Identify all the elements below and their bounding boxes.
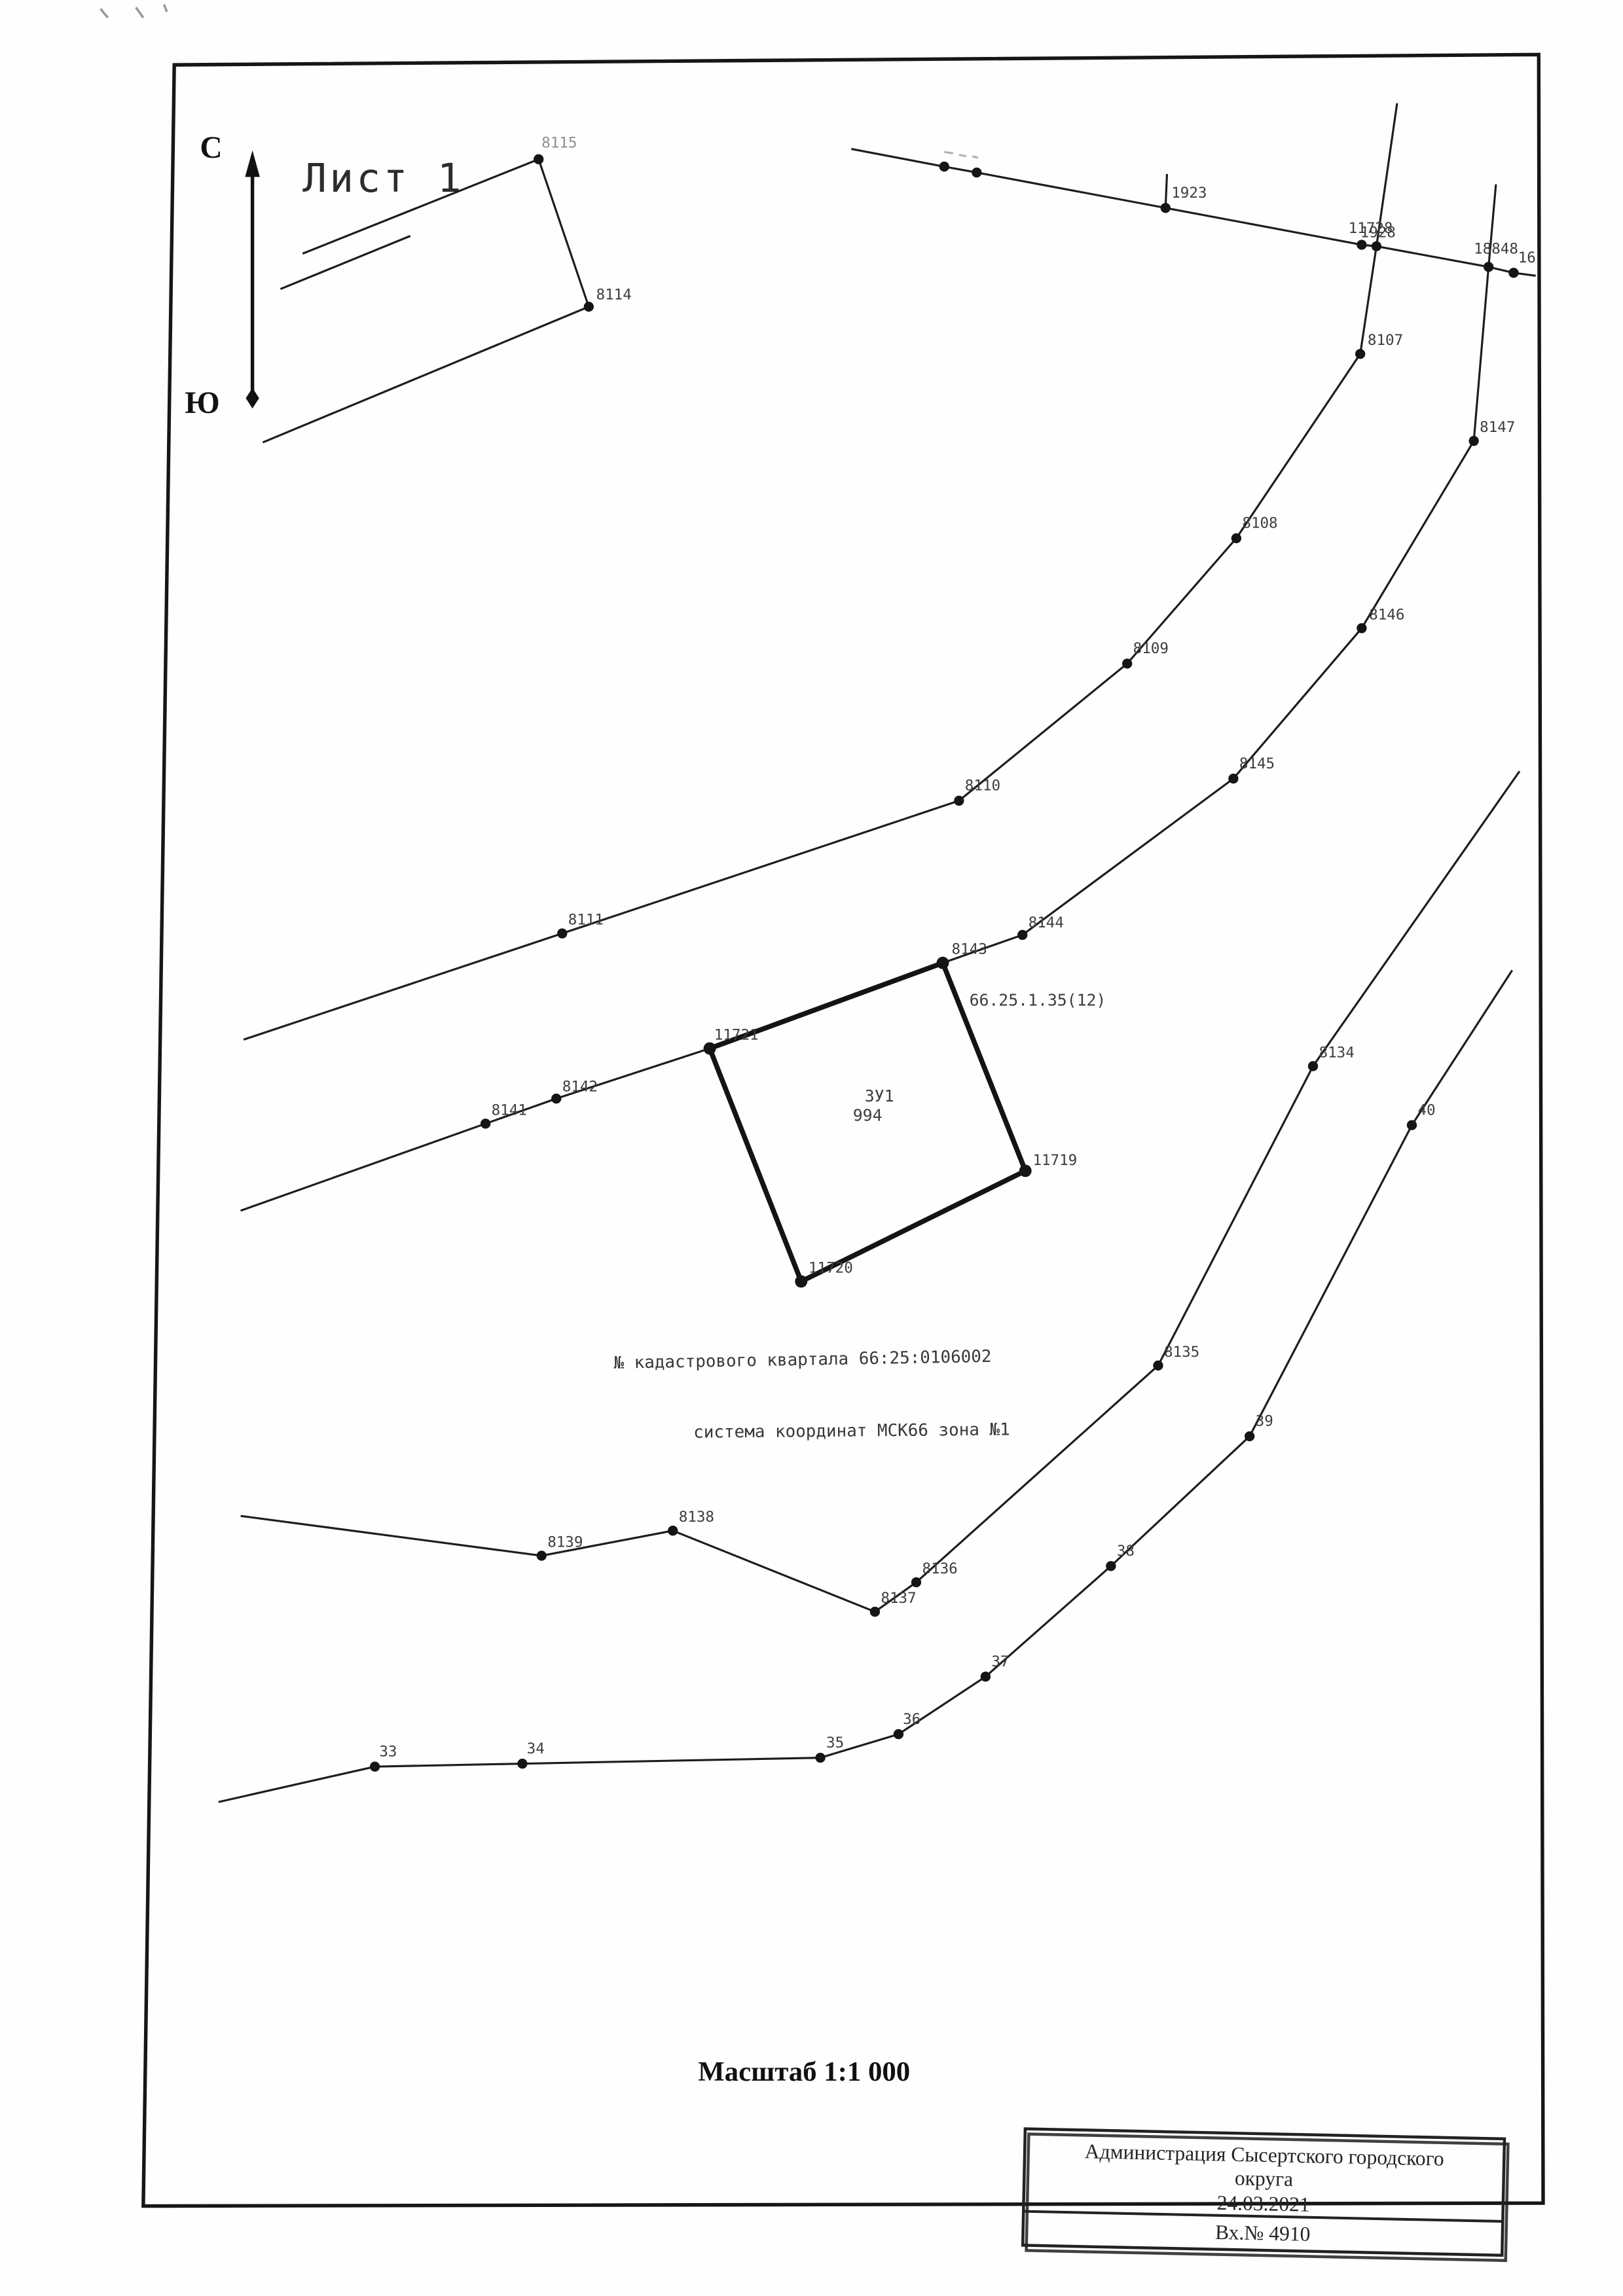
survey-point-label: 8111 xyxy=(568,912,604,929)
survey-point-label: 8115 xyxy=(541,134,577,151)
parcel-area-label: 994 xyxy=(853,1105,883,1124)
survey-point-label: 16 xyxy=(1518,249,1536,266)
scan-pen-mark xyxy=(164,5,167,12)
survey-point-label: 11721 xyxy=(714,1026,759,1043)
survey-point-label: 34 xyxy=(527,1740,545,1757)
survey-point-label: 37 xyxy=(991,1653,1009,1670)
north-arrow-head-icon xyxy=(245,151,260,177)
line-to-8147-8141 xyxy=(241,185,1496,1211)
survey-point-dot xyxy=(1161,203,1171,213)
survey-point-label: 8110 xyxy=(965,778,1000,795)
scale-caption: Масштаб 1:1 000 xyxy=(698,2056,910,2087)
survey-point-label: 8144 xyxy=(1029,914,1064,931)
survey-point-dot xyxy=(1153,1361,1163,1371)
survey-point-dot xyxy=(1372,242,1381,251)
survey-point-label: 8141 xyxy=(492,1102,527,1119)
survey-point-dot xyxy=(1228,774,1238,783)
sheet1-fragment-b xyxy=(280,236,410,289)
survey-point-label: 8147 xyxy=(1480,419,1515,436)
page-border xyxy=(143,54,1543,2206)
survey-point-dot xyxy=(1484,262,1493,272)
parcel-name-label: ЗУ1 xyxy=(865,1086,894,1105)
map-note-text: № кадастрового квартала 66:25:0106002 xyxy=(613,1347,992,1373)
survey-point-dot xyxy=(1357,623,1366,633)
survey-point-dot xyxy=(517,1759,527,1768)
zone-code-label: 66.25.1.35(12) xyxy=(970,991,1106,1010)
survey-point-dot xyxy=(1308,1061,1318,1071)
faded-label-dash xyxy=(959,155,966,156)
compass-south-label: Ю xyxy=(185,386,219,420)
survey-point-label: 8134 xyxy=(1319,1044,1355,1061)
scan-pen-mark xyxy=(101,9,108,18)
survey-point-dot xyxy=(668,1526,678,1535)
scan-pen-mark xyxy=(136,7,143,18)
broken-line-8139-8134 xyxy=(241,771,1520,1611)
survey-point-dot xyxy=(534,154,543,164)
survey-point-dot xyxy=(972,168,981,177)
survey-point-dot xyxy=(815,1753,825,1763)
survey-point-dot xyxy=(894,1729,903,1739)
survey-point-label: 8137 xyxy=(881,1590,916,1607)
survey-point-label: 8145 xyxy=(1239,755,1275,772)
survey-point-dot xyxy=(481,1119,490,1128)
survey-point-label: 1923 xyxy=(1171,185,1207,202)
survey-point-dot xyxy=(1407,1120,1417,1130)
stamp-entry-number: Вх.№ 4910 xyxy=(1215,2221,1311,2246)
survey-point-label: 8146 xyxy=(1369,606,1404,623)
survey-point-dot xyxy=(981,1672,991,1681)
line-to-8107-8111 xyxy=(244,103,1397,1040)
stamp-organization-line1: Администрация Сысертского городского xyxy=(1085,2140,1444,2170)
survey-point-dot xyxy=(1019,1164,1032,1177)
survey-point-dot xyxy=(795,1275,807,1287)
scanned-cadastral-sheet: СЮЛист 1ЗУ199419231172819281884816810781… xyxy=(0,0,1623,2296)
label-leader-1923 xyxy=(1165,174,1167,208)
survey-point-label: 38 xyxy=(1117,1543,1135,1560)
survey-point-label: 8135 xyxy=(1164,1344,1199,1361)
survey-point-dot xyxy=(370,1761,380,1771)
survey-point-label: 1928 xyxy=(1360,224,1396,242)
survey-point-label: 8139 xyxy=(547,1534,583,1551)
compass-north-label: С xyxy=(200,131,222,165)
survey-point-label: 11720 xyxy=(809,1259,853,1276)
survey-point-dot xyxy=(954,796,964,806)
survey-point-dot xyxy=(870,1607,880,1617)
survey-point-label: 33 xyxy=(379,1743,397,1760)
survey-point-label: 39 xyxy=(1256,1413,1273,1430)
survey-point-label: 8109 xyxy=(1133,640,1169,657)
survey-point-dot xyxy=(937,957,949,969)
survey-point-dot xyxy=(1468,436,1478,446)
cadastral-map-svg: СЮЛист 1ЗУ199419231172819281884816810781… xyxy=(0,0,1623,2296)
survey-point-dot xyxy=(1231,533,1241,543)
stamp-date: 24.03.2021 xyxy=(1216,2191,1310,2216)
survey-point-dot xyxy=(584,302,594,312)
survey-point-dot xyxy=(704,1042,716,1054)
north-arrow-tail-icon xyxy=(246,388,259,409)
survey-point-label: 8114 xyxy=(596,286,632,303)
survey-point-label: 40 xyxy=(1418,1102,1436,1119)
survey-point-dot xyxy=(557,929,567,939)
survey-point-label: 8142 xyxy=(562,1078,598,1095)
survey-point-label: 11719 xyxy=(1032,1152,1077,1169)
stamp-organization-line2: округа xyxy=(1235,2166,1294,2191)
survey-point-label: 8143 xyxy=(952,941,987,958)
survey-point-label: 8107 xyxy=(1368,332,1403,349)
survey-point-dot xyxy=(1508,268,1518,278)
survey-point-label: 35 xyxy=(826,1734,844,1751)
registration-stamp: Администрация Сысертского городскогоокру… xyxy=(1023,2129,1508,2261)
sheet-number-title: Лист 1 xyxy=(302,156,464,202)
faded-label-dash xyxy=(972,156,978,158)
sheet1-fragment-c xyxy=(263,307,589,442)
survey-point-dot xyxy=(1017,930,1027,940)
survey-point-dot xyxy=(1122,658,1132,668)
survey-point-dot xyxy=(1106,1561,1116,1571)
survey-point-dot xyxy=(939,162,949,171)
survey-point-dot xyxy=(551,1094,561,1103)
top-fence-line xyxy=(851,149,1535,276)
survey-point-dot xyxy=(537,1551,547,1560)
survey-point-label: 36 xyxy=(903,1711,921,1728)
sheet1-fragment-d xyxy=(539,159,589,306)
survey-point-dot xyxy=(1355,349,1365,359)
survey-point-label: 18848 xyxy=(1474,241,1518,258)
survey-point-label: 8138 xyxy=(679,1509,714,1526)
map-note-text: система координат МСК66 зона №1 xyxy=(693,1420,1010,1443)
survey-point-label: 8136 xyxy=(922,1560,957,1577)
survey-point-dot xyxy=(911,1577,921,1587)
survey-point-label: 8108 xyxy=(1242,515,1277,532)
faded-label-dash xyxy=(944,152,953,153)
survey-point-dot xyxy=(1245,1431,1254,1441)
